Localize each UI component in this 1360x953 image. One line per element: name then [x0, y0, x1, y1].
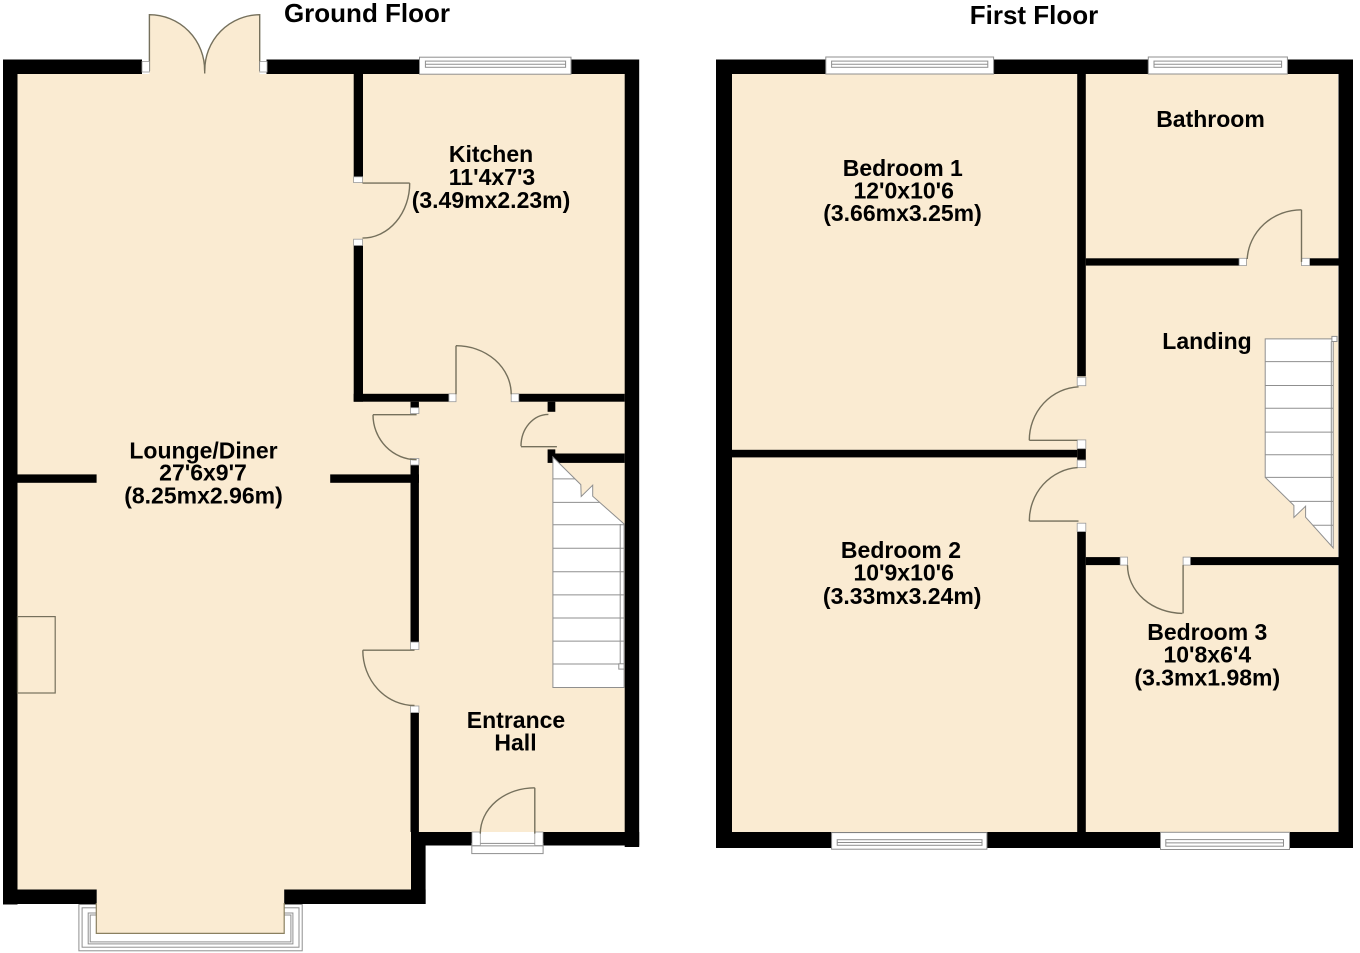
svg-text:27'6x9'7: 27'6x9'7 — [159, 459, 247, 485]
svg-text:Landing: Landing — [1162, 328, 1251, 354]
svg-text:Bathroom: Bathroom — [1156, 106, 1265, 132]
svg-text:(3.3mx1.98m): (3.3mx1.98m) — [1134, 664, 1280, 690]
svg-text:(3.49mx2.23m): (3.49mx2.23m) — [412, 187, 571, 213]
svg-text:Ground Floor: Ground Floor — [284, 0, 450, 28]
svg-text:10'9x10'6: 10'9x10'6 — [853, 560, 953, 586]
svg-text:10'8x6'4: 10'8x6'4 — [1163, 641, 1251, 667]
svg-text:First Floor: First Floor — [970, 0, 1099, 30]
svg-text:(3.66mx3.25m): (3.66mx3.25m) — [823, 200, 982, 226]
svg-text:(8.25mx2.96m): (8.25mx2.96m) — [124, 483, 283, 509]
svg-text:(3.33mx3.24m): (3.33mx3.24m) — [823, 583, 982, 609]
svg-text:Hall: Hall — [494, 729, 536, 755]
